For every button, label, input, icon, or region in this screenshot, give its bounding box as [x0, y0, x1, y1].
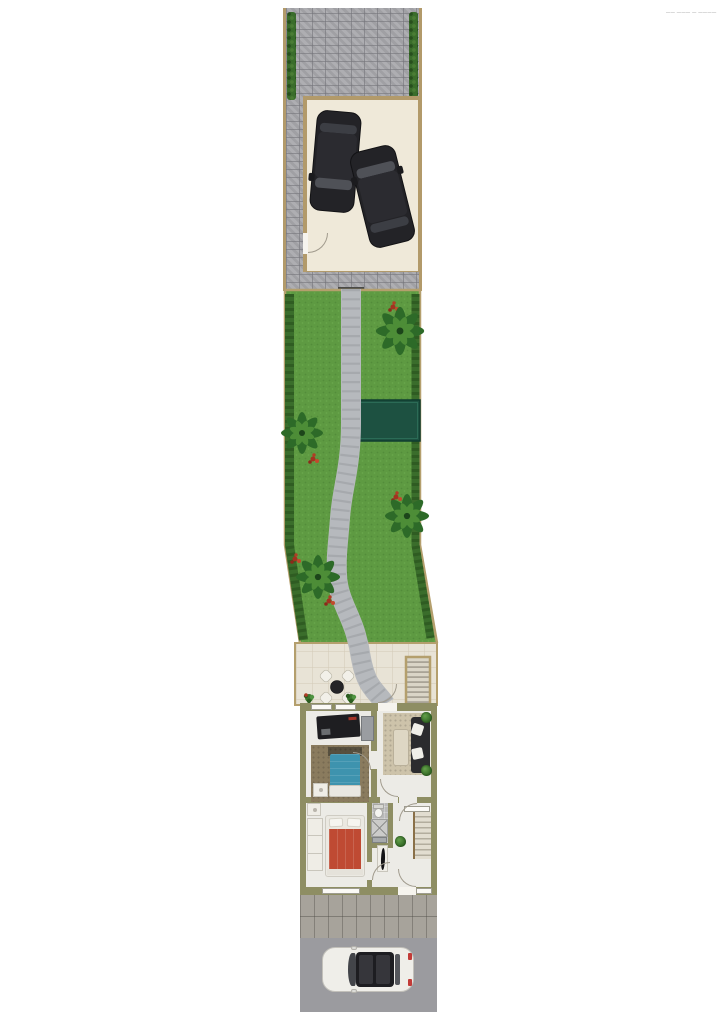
- bed-foot-rail: [327, 869, 363, 875]
- bed-red: [325, 815, 365, 877]
- living-plant-top: [421, 712, 432, 723]
- car-mirror-bottom: [351, 989, 357, 993]
- bed-pillow-right: [347, 818, 361, 828]
- driveway-hedge-right: [409, 12, 418, 98]
- living-door-opening: [380, 797, 398, 803]
- window-bottom-2: [416, 888, 432, 894]
- nightstand: [313, 783, 328, 797]
- car-roof-pane-2: [376, 955, 390, 984]
- dresser: [307, 803, 321, 816]
- nightstand-knob: [319, 788, 323, 792]
- car-taillight-top: [408, 953, 412, 960]
- coffee-table: [393, 729, 409, 766]
- bathroom-sink: [372, 837, 387, 843]
- dresser-knob: [313, 808, 317, 812]
- car-roof-pane-1: [359, 955, 373, 984]
- patio-flower-accent: [304, 693, 308, 697]
- bedroom2-sofa: [307, 818, 323, 871]
- front-door-opening: [398, 887, 416, 895]
- car-taillight-bottom: [408, 979, 412, 986]
- palm-tree-2: [281, 412, 323, 454]
- palm-tree-3: [385, 494, 429, 538]
- window-bottom-1: [322, 888, 360, 894]
- hall-plant: [395, 836, 406, 847]
- kitchen-counter: [316, 714, 360, 740]
- bed-pillow-left: [329, 818, 343, 828]
- site-floor-plan: —— ——— — ————: [0, 0, 724, 1024]
- bed-footboard: [329, 785, 361, 797]
- palm-tree-4: [296, 555, 340, 599]
- garden-shed: [356, 400, 420, 441]
- street-car-white: [322, 947, 414, 992]
- car-mirror-top: [351, 946, 357, 950]
- house-wall-right: [431, 703, 437, 895]
- kitchen-sink: [321, 729, 330, 736]
- window-top-2: [335, 704, 356, 710]
- driveway-hedge-left: [287, 12, 296, 100]
- garden-svg: [280, 283, 445, 715]
- window-top-1: [311, 704, 332, 710]
- palm-tree-1: [376, 307, 424, 355]
- bedroom1-door-opening: [371, 751, 377, 769]
- patio-table: [331, 681, 344, 694]
- toilet-bowl: [374, 808, 383, 818]
- sofa-pillow-2: [411, 747, 424, 760]
- driveway-side-strip: [286, 100, 303, 274]
- fridge-cabinet: [361, 716, 374, 741]
- wall-bath-right: [388, 803, 393, 847]
- shower: [371, 819, 388, 837]
- car-roof: [356, 952, 394, 987]
- car-windshield: [348, 953, 356, 986]
- patio-door-opening: [378, 703, 397, 711]
- sidewalk: [300, 895, 437, 938]
- stove-accent: [348, 717, 356, 721]
- driveway-paving: [286, 8, 419, 102]
- car-rear-window: [395, 954, 400, 985]
- exterior-stairs: [406, 657, 430, 707]
- car-mirror-left: [308, 173, 315, 181]
- living-plant-bottom: [421, 765, 432, 776]
- bed-blanket-red: [329, 829, 361, 869]
- watermark-text: —— ——— — ————: [666, 10, 717, 15]
